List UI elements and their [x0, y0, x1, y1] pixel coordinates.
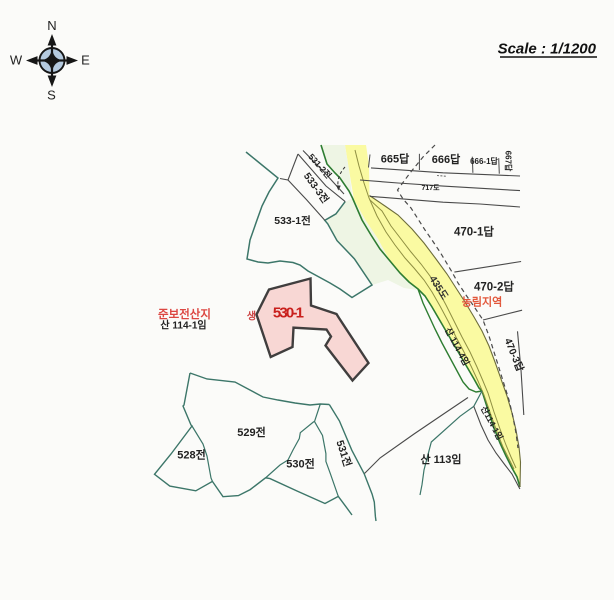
svg-text:533-1전: 533-1전	[274, 214, 311, 227]
svg-text:530-1: 530-1	[273, 305, 304, 322]
svg-text:생: 생	[247, 310, 256, 323]
svg-text:528전: 528전	[177, 448, 205, 462]
svg-text:665답: 665답	[381, 152, 409, 166]
svg-text:717도: 717도	[421, 184, 440, 192]
svg-text:준보전산지: 준보전산지	[158, 307, 211, 321]
svg-text:N: N	[47, 18, 56, 33]
svg-text:W: W	[10, 53, 23, 68]
svg-text:농림지역: 농림지역	[462, 295, 502, 309]
svg-text:530전: 530전	[286, 457, 314, 471]
svg-text:666-1답: 666-1답	[470, 156, 498, 166]
svg-text:529전: 529전	[237, 425, 265, 439]
svg-text:666답: 666답	[432, 152, 460, 166]
svg-text:산 113임: 산 113임	[420, 452, 461, 466]
svg-text:E: E	[81, 53, 90, 68]
svg-text:470-2답: 470-2답	[474, 280, 514, 294]
svg-text:S: S	[47, 88, 56, 103]
svg-text:667답: 667답	[504, 151, 514, 172]
svg-text:470-1답: 470-1답	[454, 225, 494, 239]
svg-text:Scale : 1/1200: Scale : 1/1200	[498, 41, 597, 58]
svg-text:산 114-1임: 산 114-1임	[160, 319, 206, 332]
